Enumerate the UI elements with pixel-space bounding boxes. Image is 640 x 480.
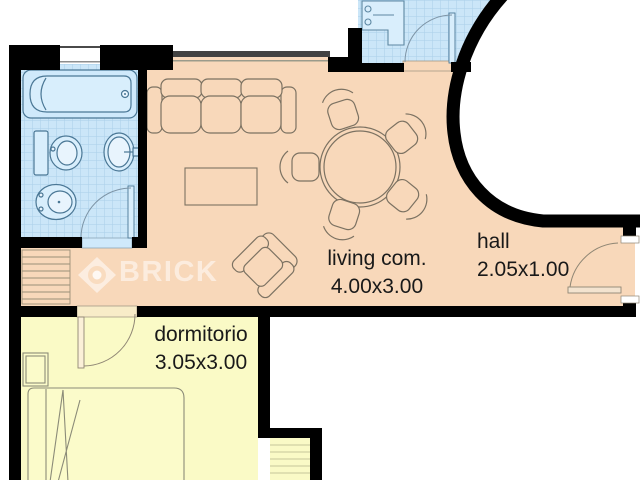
room-dims: 3.05x3.00 xyxy=(147,349,255,377)
bathroom-window xyxy=(59,45,101,64)
bidet-icon xyxy=(36,185,76,220)
room-dims: 2.05x1.00 xyxy=(477,256,569,284)
closet-alcove xyxy=(270,438,310,480)
room-label-living: living com. 4.00x3.00 xyxy=(323,245,431,300)
sofa-icon xyxy=(147,79,296,133)
bed-icon xyxy=(28,388,184,480)
brand-watermark-text: BRICK xyxy=(119,256,218,289)
bathtub-icon xyxy=(23,70,137,118)
room-dims: 4.00x3.00 xyxy=(323,273,431,301)
room-name: hall xyxy=(477,228,569,256)
coffee-table-icon xyxy=(185,168,257,205)
room-label-hall: hall 2.05x1.00 xyxy=(477,228,569,283)
room-name: living com. xyxy=(323,245,431,273)
room-name: dormitorio xyxy=(147,321,255,349)
floor-plan: living com. 4.00x3.00 hall 2.05x1.00 dor… xyxy=(0,0,640,480)
room-label-dormitorio: dormitorio 3.05x3.00 xyxy=(147,321,255,376)
nightstand-icon xyxy=(23,353,48,386)
